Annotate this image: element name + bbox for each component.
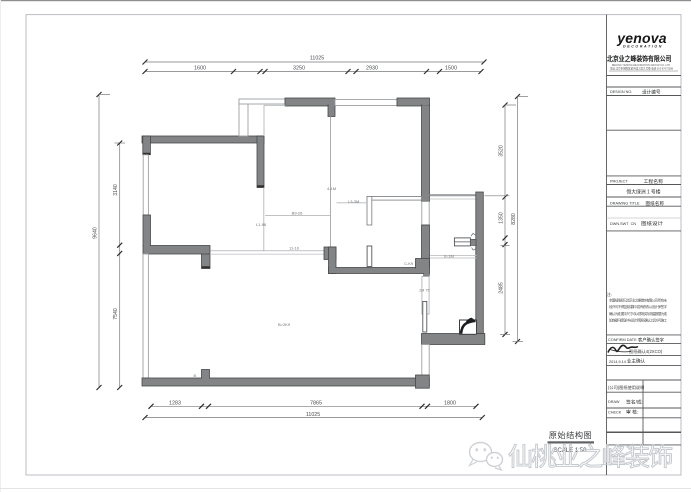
svg-text:如有疑问请及时与设计师联系确认之后方可施工: 如有疑问请及时与设计师联系确认之后方可施工 (609, 318, 668, 323)
svg-text:B9-26: B9-26 (292, 210, 303, 215)
svg-text:1800: 1800 (444, 400, 456, 406)
svg-text:CONFIRM DATE: CONFIRM DATE (608, 338, 637, 342)
svg-text:图纸设计: 图纸设计 (641, 220, 663, 227)
svg-text:E-1M: E-1M (444, 253, 454, 258)
svg-text:3250: 3250 (293, 66, 305, 72)
svg-text:签名/成:: 签名/成: (626, 398, 643, 405)
svg-text:(公司)图纸使用说明: (公司)图纸使用说明 (608, 384, 644, 391)
svg-text:L3-3M: L3-3M (348, 199, 359, 204)
svg-text:7865: 7865 (310, 400, 322, 406)
svg-text:工程名称: 工程名称 (644, 178, 664, 185)
svg-text:1283: 1283 (169, 400, 181, 406)
svg-text:2930: 2930 (366, 66, 378, 72)
svg-text:PROJECT: PROJECT (610, 179, 628, 183)
svg-text:DRAW: DRAW (608, 400, 620, 404)
svg-text:图纸确认4(2XCO): 图纸确认4(2XCO) (629, 348, 663, 355)
svg-text:8280: 8280 (511, 213, 517, 225)
svg-text:审 核:: 审 核: (626, 409, 638, 416)
svg-text:DRAWING TITLE: DRAWING TITLE (610, 202, 640, 206)
svg-text:确认为准 图中尺寸均以现场实际测量数据为准: 确认为准 图中尺寸均以现场实际测量数据为准 (609, 311, 668, 316)
svg-text:2014.9.14: 2014.9.14 (609, 360, 626, 364)
svg-text:1350: 1350 (499, 212, 505, 224)
svg-text:7540: 7540 (113, 308, 119, 320)
svg-text:3140: 3140 (113, 184, 119, 196)
svg-text:客户确认签字: 客户确认签字 (638, 337, 664, 344)
svg-text:设计编号: 设计编号 (642, 89, 661, 96)
svg-text:恒大绿洲 1 号楼: 恒大绿洲 1 号楼 (627, 188, 661, 196)
svg-text:11025: 11025 (310, 56, 324, 62)
svg-text:CHECK: CHECK (608, 410, 622, 414)
svg-text:1500: 1500 (445, 66, 457, 72)
svg-text:11-10: 11-10 (289, 246, 300, 251)
svg-text:图纸名称: 图纸名称 (646, 200, 665, 207)
svg-text:4-1M: 4-1M (327, 186, 336, 191)
svg-text:11025: 11025 (306, 412, 320, 418)
svg-text:B>2K9: B>2K9 (278, 322, 291, 327)
svg-text:2485: 2485 (499, 282, 505, 294)
svg-text:9640: 9640 (93, 227, 99, 239)
svg-text:3520: 3520 (499, 145, 505, 157)
svg-text:1600: 1600 (194, 66, 206, 72)
svg-text:DWN.SWT CN: DWN.SWT CN (610, 222, 636, 226)
svg-text:业主确认: 业主确认 (627, 357, 645, 364)
svg-text:注:: 注: (607, 292, 612, 297)
svg-text:经许可不得复制 翻印 若有修改以设计师签字: 经许可不得复制 翻印 若有修改以设计师签字 (609, 304, 668, 309)
svg-text:北京业之峰装饰有限公司: 北京业之峰装饰有限公司 (607, 54, 672, 63)
svg-text:C-K9: C-K9 (404, 261, 414, 266)
svg-text:DECORATION: DECORATION (623, 45, 663, 49)
svg-text:DESIGN NO.: DESIGN NO. (610, 90, 632, 94)
svg-text:本图纸版权归北京业之峰装饰有限公司 所有未: 本图纸版权归北京业之峰装饰有限公司 所有未 (609, 298, 668, 303)
svg-text:地址:北京市朝阳区紫芳园三区九号楼 电话:010-87675: 地址:北京市朝阳区紫芳园三区九号楼 电话:010-87675588 (610, 67, 673, 71)
svg-text:1M 75: 1M 75 (419, 289, 430, 293)
svg-text:L1-96: L1-96 (256, 222, 267, 227)
svg-text:原始结构图: 原始结构图 (549, 430, 592, 440)
svg-text:仙桃业之峰装饰: 仙桃业之峰装饰 (508, 444, 672, 472)
